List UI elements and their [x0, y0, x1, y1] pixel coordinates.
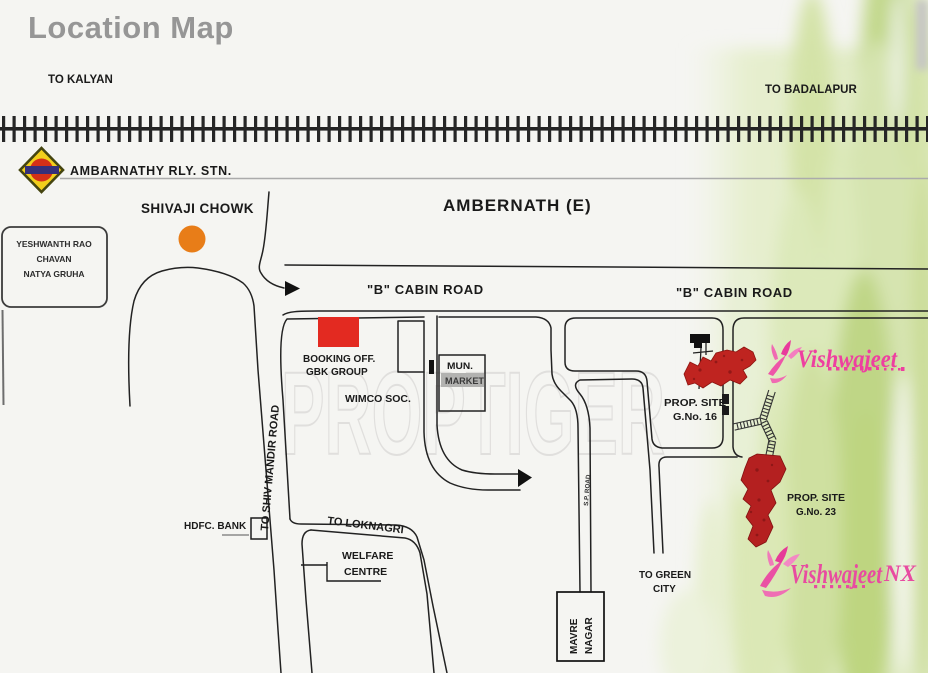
svg-text:WELFARE: WELFARE [342, 550, 393, 562]
svg-text:AMBERNATH (E): AMBERNATH (E) [443, 196, 592, 215]
svg-text:TO BADALAPUR: TO BADALAPUR [765, 84, 857, 96]
svg-text:NATYA GRUHA: NATYA GRUHA [23, 269, 84, 279]
svg-text:NAGAR: NAGAR [584, 617, 595, 654]
svg-text:MARKET: MARKET [445, 376, 484, 387]
svg-text:CHAVAN: CHAVAN [36, 254, 71, 264]
svg-text:CITY: CITY [653, 584, 676, 595]
svg-text:G.No. 16: G.No. 16 [673, 411, 717, 423]
svg-text:"B" CABIN ROAD: "B" CABIN ROAD [367, 282, 484, 297]
svg-text:TO GREEN: TO GREEN [639, 570, 691, 581]
svg-text:HDFC. BANK: HDFC. BANK [184, 521, 247, 532]
svg-text:Location Map: Location Map [28, 10, 234, 45]
svg-text:SHIVAJI CHOWK: SHIVAJI CHOWK [141, 201, 254, 216]
svg-text:G.No. 23: G.No. 23 [796, 506, 836, 518]
svg-text:PROP. SITE: PROP. SITE [664, 397, 726, 409]
svg-text:WIMCO SOC.: WIMCO SOC. [345, 393, 411, 405]
svg-text:PROP. SITE: PROP. SITE [787, 492, 845, 504]
svg-text:AMBARNATHY RLY. STN.: AMBARNATHY RLY. STN. [70, 164, 232, 178]
svg-text:BOOKING OFF.: BOOKING OFF. [303, 354, 375, 365]
svg-text:NX: NX [883, 561, 917, 586]
svg-text:CENTRE: CENTRE [344, 566, 387, 578]
svg-text:Vishwajeet: Vishwajeet [790, 559, 883, 589]
svg-text:"B" CABIN ROAD: "B" CABIN ROAD [676, 285, 793, 300]
svg-text:GBK GROUP: GBK GROUP [306, 367, 368, 378]
svg-text:YESHWANTH RAO: YESHWANTH RAO [16, 239, 92, 249]
svg-text:MAVRE: MAVRE [569, 618, 580, 654]
svg-text:TO KALYAN: TO KALYAN [48, 74, 113, 86]
svg-text:MUN.: MUN. [447, 361, 473, 372]
